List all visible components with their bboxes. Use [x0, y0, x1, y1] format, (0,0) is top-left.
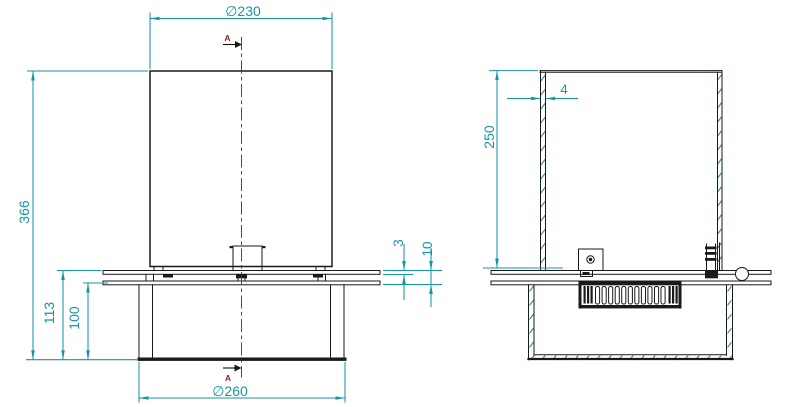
dim-label-section-height: 250 [481, 125, 497, 149]
section-tank-left-hatch [530, 286, 534, 354]
dim-section-height: 250 [481, 71, 563, 268]
tank-bottom [138, 358, 347, 361]
dim-label-wall-thickness: 4 [560, 82, 568, 97]
dim-label-height-tank: 100 [66, 306, 82, 330]
section-plate-top [491, 271, 771, 275]
latch-block [705, 271, 718, 279]
dim-label-dia-top: ∅230 [225, 3, 261, 19]
technical-drawing-page: A A ∅230 366 113 [0, 0, 799, 407]
dim-label-plate-thickness: 3 [391, 239, 406, 247]
drawing-canvas: A A ∅230 366 113 [0, 0, 799, 407]
section-tank-right-hatch [728, 286, 732, 354]
section-marker-bottom: A [223, 365, 242, 384]
section-arrow-head-bottom [235, 365, 242, 372]
front-view: A A ∅230 366 113 [16, 3, 442, 403]
shell-wall-left-hatch [541, 73, 546, 270]
roller-knob [736, 268, 749, 281]
vent-slots [596, 287, 666, 305]
plate-clip-left [163, 274, 173, 277]
grille-right-bar [679, 281, 682, 309]
connector-flange-right [262, 246, 266, 248]
section-arrow-head-top [235, 41, 242, 48]
cylinder-outline [150, 71, 332, 267]
grille-bottom-bar [579, 305, 682, 308]
dim-height-tank: 100 [66, 283, 108, 360]
section-letter-bottom: A [225, 373, 231, 383]
shell-wall-right-hatch [718, 73, 722, 270]
section-marker-top: A [223, 33, 242, 48]
dim-height-total: 366 [16, 71, 148, 360]
vent-slots-filled-right [669, 286, 678, 304]
grille-top-bar [579, 281, 682, 285]
dim-dia-base: ∅260 [139, 362, 345, 403]
section-view: 250 4 [481, 71, 771, 360]
igniter-foot-pin [583, 272, 590, 275]
vent-slots-filled-left [584, 286, 593, 304]
dim-label-height-total: 366 [16, 200, 32, 224]
dim-label-plate-assembly: 10 [420, 241, 435, 256]
igniter-hole-center [589, 258, 592, 261]
dim-label-height-plate: 113 [41, 302, 57, 325]
connector-flange-left [230, 246, 234, 248]
section-letter-top: A [224, 33, 230, 43]
grille-left-bar [579, 281, 582, 309]
dim-dia-top: ∅230 [150, 3, 332, 69]
dim-label-dia-base: ∅260 [212, 383, 248, 399]
